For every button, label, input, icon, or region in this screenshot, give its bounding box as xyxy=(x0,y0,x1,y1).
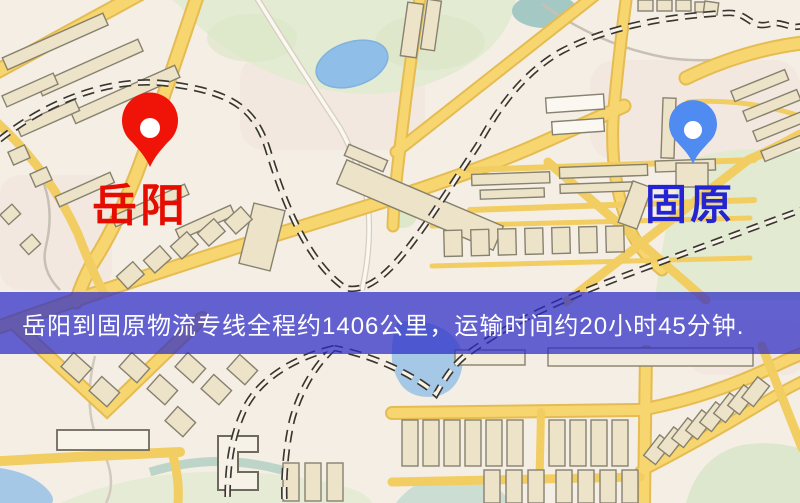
destination-label: 固原 xyxy=(645,181,735,228)
route-info-text: 岳阳到固原物流专线全程约1406公里，运输时间约20小时45分钟. xyxy=(22,306,744,341)
logistics-route-map: 岳阳 固原 岳阳到固原物流专线全程约1406公里，运输时间约20小时45分钟. xyxy=(0,0,800,503)
map-image: 岳阳 固原 xyxy=(0,0,800,503)
route-info-banner: 岳阳到固原物流专线全程约1406公里，运输时间约20小时45分钟. xyxy=(0,292,800,354)
origin-label: 岳阳 xyxy=(92,180,188,231)
